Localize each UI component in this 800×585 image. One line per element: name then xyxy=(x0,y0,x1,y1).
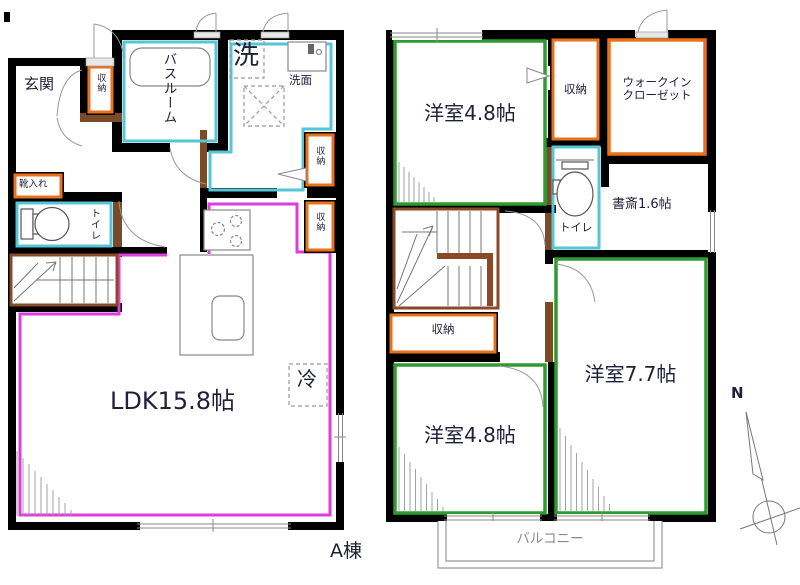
refrigerator-label: 冷 xyxy=(297,368,317,391)
shoe-storage-label: 靴入れ xyxy=(19,180,48,191)
stove-icon xyxy=(204,210,250,250)
vent-window-arc xyxy=(263,13,288,32)
stair-storage-label: 収納 xyxy=(391,323,495,336)
room-sw-label: 洋室4.8帖 xyxy=(405,424,535,447)
balcony-label: バルコニー xyxy=(480,532,620,548)
hall-door-arc xyxy=(505,211,545,245)
entrance-storage-label: 収納 xyxy=(95,73,105,93)
study-label: 書斎1.6帖 xyxy=(612,198,672,213)
floor2-stairs xyxy=(394,209,498,308)
compass-north-label: N xyxy=(731,385,744,402)
building-title: A棟 xyxy=(330,541,362,563)
hall-door-arc xyxy=(57,70,82,146)
toilet2-label: トイレ xyxy=(553,222,599,235)
toilet1-label: トイレ xyxy=(88,208,100,241)
room-se-outline xyxy=(556,259,706,513)
entrance-label: 玄関 xyxy=(24,76,54,93)
ldk-label: LDK15.8帖 xyxy=(110,388,235,416)
walkin-closet-label: ウォークイン クローゼット xyxy=(609,76,705,102)
vent-window-arc xyxy=(196,13,216,32)
room-sw-door-arc xyxy=(499,366,543,407)
bathroom-label: バスルーム xyxy=(160,52,176,125)
floorplan-canvas: 玄関 収納 靴入れ バスルーム 洗 洗面 収納 収納 トイレ LDK15.8帖 … xyxy=(0,0,800,585)
toilet1-icon xyxy=(21,208,69,241)
ldk-door-arc xyxy=(119,201,165,247)
sink-icon xyxy=(212,296,244,340)
room-se-label: 洋室7.7帖 xyxy=(563,363,698,386)
compass-icon xyxy=(740,412,800,545)
washstand-label: 洗面 xyxy=(289,74,312,87)
room-nw-label: 洋室4.8帖 xyxy=(405,102,535,125)
vent-window-arc xyxy=(638,10,667,32)
washbasin-icon xyxy=(288,42,326,71)
floor1-stairs xyxy=(11,255,117,305)
laundry-label: 洗 xyxy=(233,42,259,72)
kitchen-storage-label: 収納 xyxy=(314,212,324,232)
toilet2-icon xyxy=(553,160,594,216)
washroom-storage-label: 収納 xyxy=(314,146,324,166)
storage-north-label: 収納 xyxy=(553,83,598,96)
floor1-hatching xyxy=(17,451,71,516)
washroom-door-triangle xyxy=(278,168,306,181)
entrance-sill xyxy=(86,58,114,66)
room-se-door-arc xyxy=(556,264,595,302)
